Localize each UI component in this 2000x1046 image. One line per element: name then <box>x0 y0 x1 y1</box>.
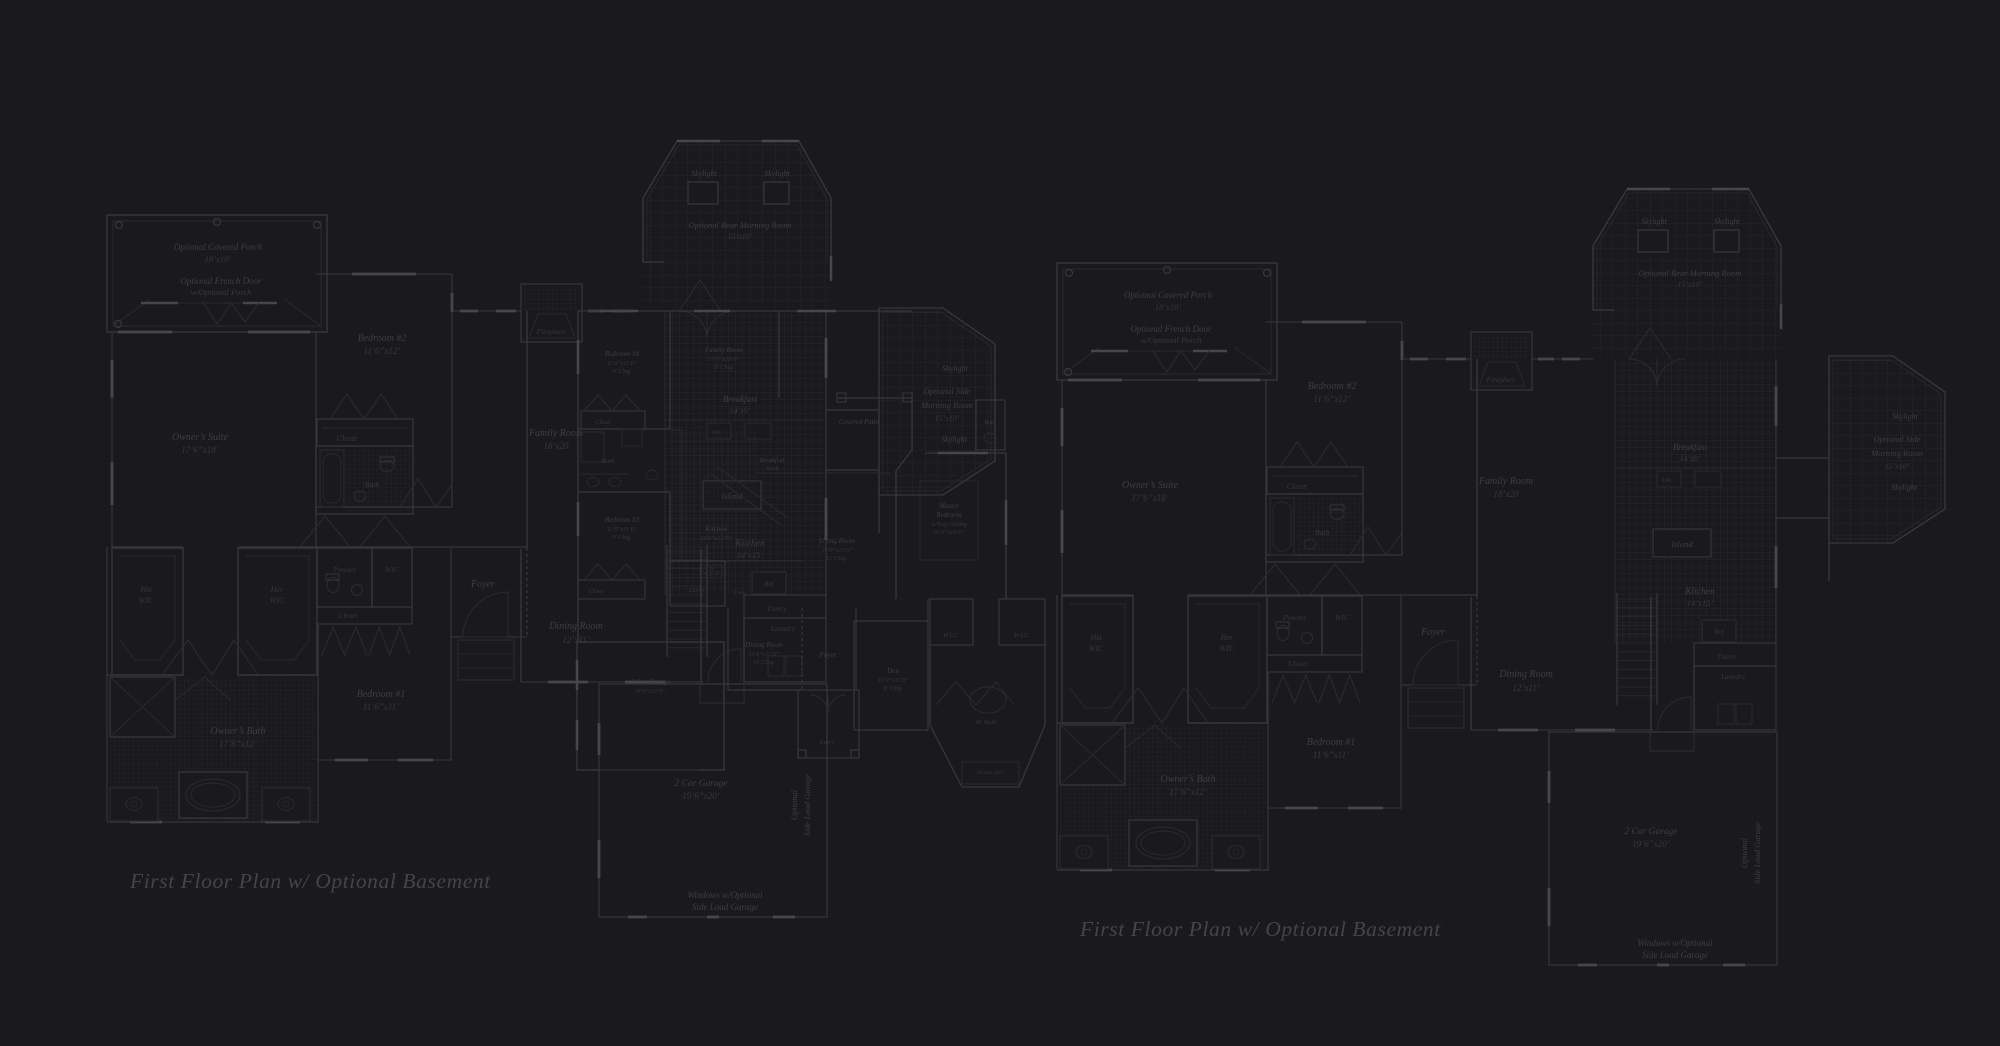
svg-text:Bedroom #4: Bedroom #4 <box>605 350 640 358</box>
svg-text:Kitchen: Kitchen <box>704 525 727 533</box>
svg-text:2 Car Garage: 2 Car Garage <box>630 678 669 686</box>
svg-text:Closet: Closet <box>595 420 611 426</box>
svg-text:Dining Room: Dining Room <box>744 641 783 649</box>
svg-text:9’ Clng.: 9’ Clng. <box>714 365 733 371</box>
svg-text:Coats: Coats <box>734 590 747 596</box>
svg-text:W.I.C.: W.I.C. <box>1014 632 1031 639</box>
svg-text:10’ Clng.: 10’ Clng. <box>753 660 775 666</box>
svg-text:Master: Master <box>938 502 959 510</box>
svg-text:Bath: Bath <box>984 420 995 426</box>
svg-text:D: D <box>714 572 719 577</box>
svg-text:Den: Den <box>886 667 899 675</box>
svg-text:Closet: Closet <box>588 589 604 595</box>
svg-text:12’ Clng.: 12’ Clng. <box>826 556 848 562</box>
svg-text:Foyer: Foyer <box>819 651 837 659</box>
svg-text:Covered Patio: Covered Patio <box>839 418 880 426</box>
svg-text:Window Seat: Window Seat <box>977 771 1004 776</box>
svg-text:Entry: Entry <box>819 739 835 746</box>
svg-text:Bedroom: Bedroom <box>936 511 961 519</box>
svg-text:W.I.C.: W.I.C. <box>943 632 960 639</box>
svg-text:19’0”x13’0”: 19’0”x13’0” <box>821 548 853 554</box>
svg-text:9’ Clng.: 9’ Clng. <box>612 369 631 375</box>
svg-text:9’ Clng.: 9’ Clng. <box>612 535 631 541</box>
svg-text:10’0”x11’0”: 10’0”x11’0” <box>878 678 910 684</box>
svg-text:Family Room: Family Room <box>704 346 743 354</box>
svg-text:Bath: Bath <box>602 458 614 465</box>
svg-text:16’0”x14’0”: 16’0”x14’0” <box>933 529 965 536</box>
svg-text:9’ Clng.: 9’ Clng. <box>883 686 902 692</box>
svg-text:14’6”x12’0”: 14’6”x12’0” <box>748 651 780 658</box>
svg-text:M. Bath: M. Bath <box>975 719 997 726</box>
svg-text:11’0”x11’6”: 11’0”x11’6” <box>607 527 638 533</box>
svg-text:Nook: Nook <box>764 465 779 472</box>
svg-text:11’0”x11’6”: 11’0”x11’6” <box>607 361 638 367</box>
svg-text:Utility: Utility <box>689 587 706 594</box>
svg-text:w/Tray Ceiling: w/Tray Ceiling <box>931 522 967 528</box>
svg-text:19’6”x21’0”: 19’6”x21’0” <box>634 689 666 695</box>
svg-text:Breakfast: Breakfast <box>760 457 785 464</box>
svg-text:14’0”x12’0”: 14’0”x12’0” <box>700 535 732 542</box>
svg-text:Living Room: Living Room <box>818 537 855 545</box>
svg-text:Bedroom #3: Bedroom #3 <box>605 516 640 524</box>
svg-text:17’0”x19’0”: 17’0”x19’0” <box>708 357 740 363</box>
